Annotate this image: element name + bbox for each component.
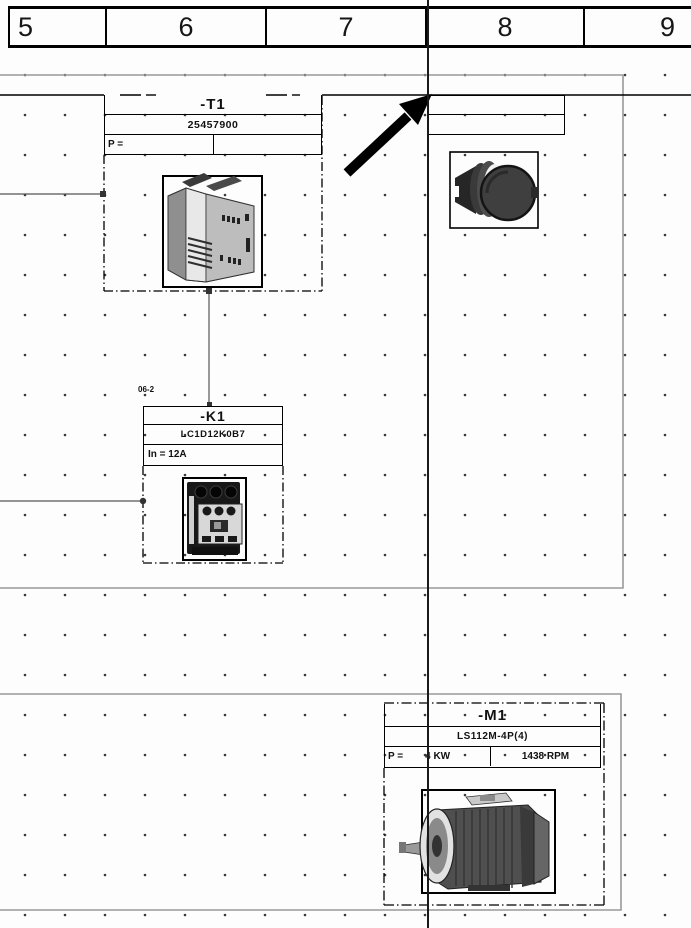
column-header-8: 8 xyxy=(427,9,585,45)
m1-part-number: LS112M-4P(4) xyxy=(385,726,600,746)
k1-cross-reference: 06-2 xyxy=(138,385,154,394)
m1-speed: 1438 RPM xyxy=(491,747,600,766)
contactor-image[interactable] xyxy=(187,482,242,555)
wire-junction-dot xyxy=(206,288,212,294)
m1-label-box[interactable]: -M1 LS112M-4P(4) P = 4 KW 1438 RPM xyxy=(384,704,601,768)
t1-label-box[interactable]: -T1 25457900 P = xyxy=(104,95,322,155)
t1-tag: -T1 xyxy=(105,95,321,114)
m1-power-label: P = xyxy=(388,751,403,762)
m1-power-value: 4 KW xyxy=(425,751,450,762)
pushbutton-row2 xyxy=(428,115,564,134)
t1-part-number: 25457900 xyxy=(105,114,321,134)
column-header-5: 5 xyxy=(10,9,107,45)
electrical-layout-sheet: { "drawing": { "header_columns": ["5", "… xyxy=(0,0,691,928)
column-header-9: 9 xyxy=(585,9,691,45)
pushbutton-row1 xyxy=(428,96,564,115)
t1-power-label: P = xyxy=(105,135,214,154)
column-header-band: 5 6 7 8 9 xyxy=(8,6,691,48)
k1-tag: -K1 xyxy=(144,407,282,424)
k1-label-box[interactable]: -K1 LC1D12K0B7 In = 12A xyxy=(143,406,283,466)
column-header-7: 7 xyxy=(267,9,427,45)
k1-part-number: LC1D12K0B7 xyxy=(144,424,282,444)
wire-junction-dot xyxy=(140,498,146,504)
k1-current-text: In = 12A xyxy=(144,444,282,464)
column-header-6: 6 xyxy=(107,9,267,45)
wire-junction-dot xyxy=(100,191,106,197)
pushbutton-label-box[interactable] xyxy=(427,95,565,135)
m1-tag: -M1 xyxy=(385,704,600,726)
